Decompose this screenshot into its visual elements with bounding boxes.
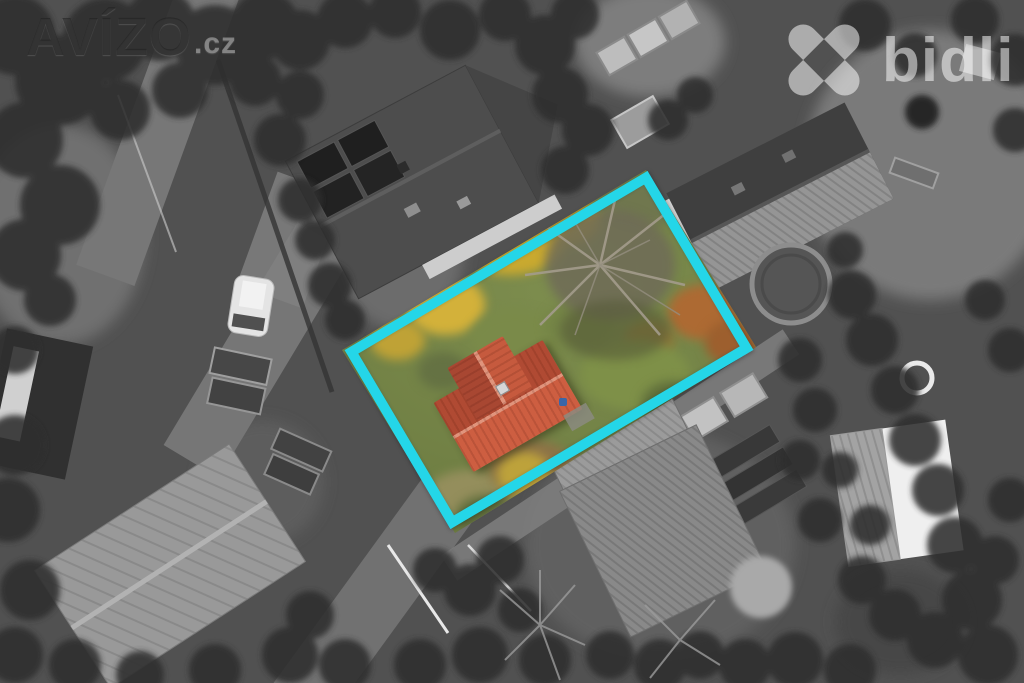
round-pool — [752, 245, 830, 323]
avizo-logo-text: AVÍZO — [26, 7, 192, 67]
bidli-logo-text: bidli — [882, 25, 1014, 96]
pale-round-bush — [730, 556, 792, 618]
avizo-domain-suffix: .cz — [194, 27, 237, 60]
aerial-photo: AVÍZO.cz bidli — [0, 0, 1024, 683]
bidli-watermark: bidli — [778, 14, 1014, 106]
bidli-clover-x-icon — [778, 14, 870, 106]
avizo-watermark: AVÍZO.cz — [26, 6, 235, 68]
white-van — [227, 274, 276, 338]
